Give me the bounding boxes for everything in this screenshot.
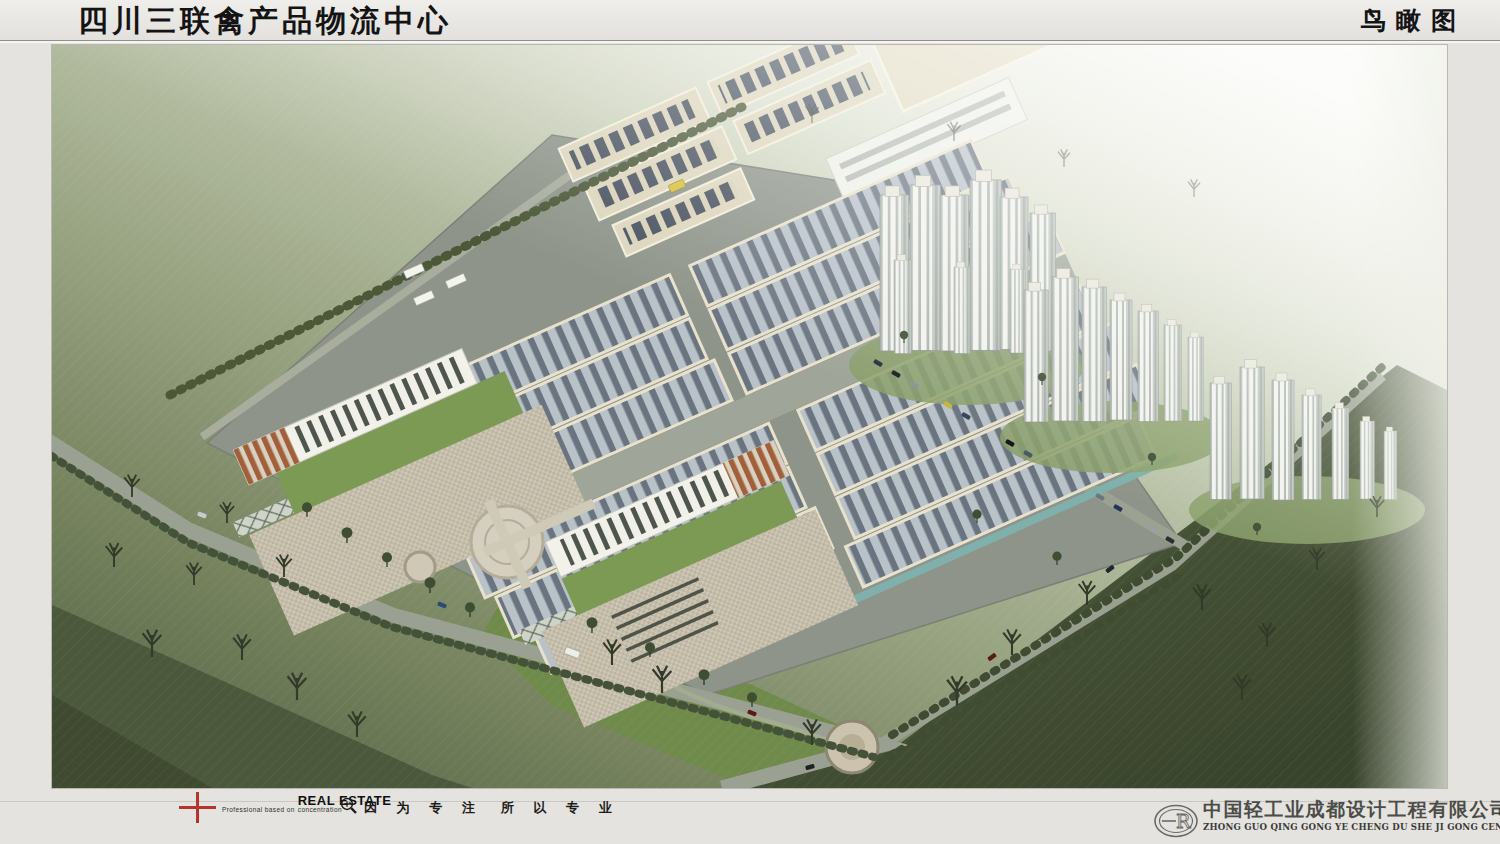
view-type-label: 鸟瞰图 (1361, 0, 1466, 41)
red-cross-icon (196, 792, 199, 823)
company-block: 中国轻工业成都设计工程有限公司 ZHONG GUO QING GONG YE C… (1203, 799, 1488, 832)
mist-overlay (52, 45, 1447, 788)
page-title: 四川三联禽产品物流中心 (78, 0, 452, 41)
brand-slogan: 因 为 专 注所 以 专 业 (364, 799, 620, 817)
right-haze (1352, 45, 1447, 788)
rendering-scene (52, 45, 1447, 788)
presentation-board: 四川三联禽产品物流中心 鸟瞰图 (0, 0, 1500, 844)
company-logo: R (1154, 804, 1200, 842)
company-pinyin: ZHONG GUO QING GONG YE CHENG DU SHE JI G… (1203, 822, 1488, 832)
company-name: 中国轻工业成都设计工程有限公司 (1203, 799, 1488, 821)
header-bar: 四川三联禽产品物流中心 鸟瞰图 (0, 0, 1500, 41)
company-logo-letter: R (1176, 810, 1191, 832)
brand-tagline-left: Professional based on (222, 806, 295, 814)
slogan-left: 因 为 专 注 (364, 800, 483, 815)
birdseye-rendering (52, 45, 1447, 788)
slogan-right: 所 以 专 业 (501, 800, 620, 815)
magnifier-plus-icon (340, 797, 359, 820)
